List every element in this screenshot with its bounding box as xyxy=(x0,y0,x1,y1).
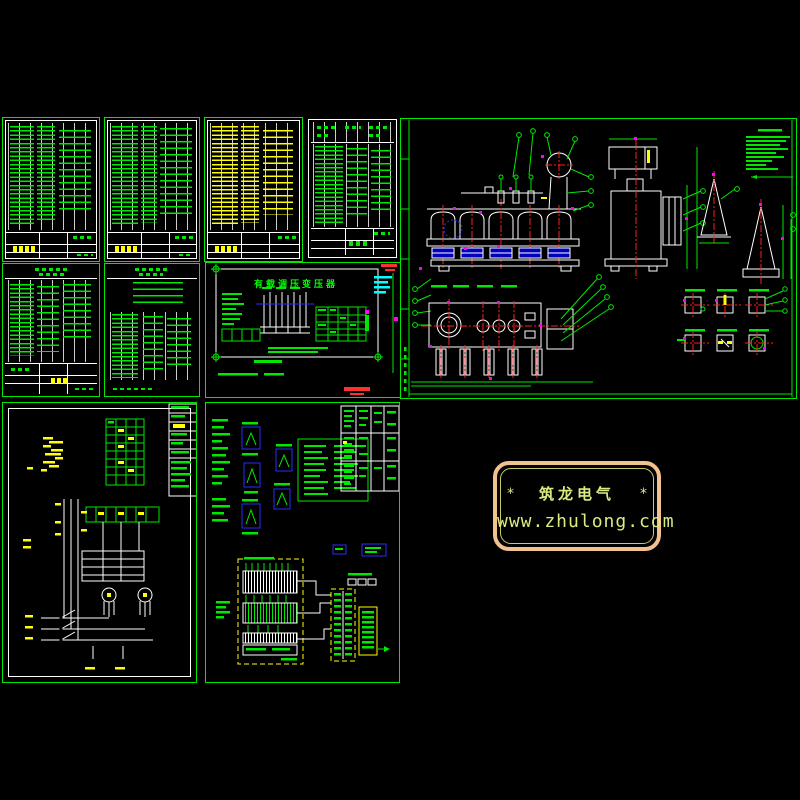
schedule-panel-4 xyxy=(308,119,397,258)
transformer-panel xyxy=(400,118,797,399)
table-rows xyxy=(112,126,138,227)
table-rows xyxy=(167,318,191,366)
drawing-name-label xyxy=(51,378,67,384)
left-legend-text xyxy=(212,419,230,522)
notes-box xyxy=(298,439,368,501)
table-header xyxy=(311,122,394,143)
schedule-panel-2 xyxy=(104,117,200,262)
table-rows xyxy=(59,130,91,213)
watermark-inner-line xyxy=(500,468,654,544)
drawing-name-label xyxy=(349,241,367,246)
title-block-text xyxy=(77,254,93,257)
watermark-brand-row: * 筑龙电气 * xyxy=(507,483,647,504)
switchgear-schematic-panel xyxy=(2,402,197,683)
switchgear-drawing xyxy=(3,403,196,682)
transformer-plan-view xyxy=(411,275,613,386)
footer-text xyxy=(113,388,153,391)
watermark-brand: 筑龙电气 xyxy=(539,483,615,504)
yellow-annotation-cluster xyxy=(27,437,63,472)
notes-text xyxy=(133,282,183,308)
table-rows xyxy=(141,126,157,223)
cad-drawing-sheet: 有载调压变压器 xyxy=(0,0,800,800)
cyan-revision-text xyxy=(374,276,392,294)
drawing-name-label xyxy=(13,246,35,252)
bushing-detail-2 xyxy=(743,199,795,285)
title-block xyxy=(107,232,197,259)
ratings-table xyxy=(316,307,366,341)
inner-frame xyxy=(9,409,191,677)
table-rows xyxy=(371,150,391,213)
title-block-text xyxy=(73,236,93,239)
table-rows xyxy=(112,314,138,378)
transformer-end-elevation xyxy=(605,137,705,279)
bushing-detail-1 xyxy=(697,171,739,245)
schedule-panel-6 xyxy=(104,263,200,397)
schedule-panel-1 xyxy=(2,117,100,262)
terminal-wiring-panel xyxy=(205,402,400,683)
tap-changer-panel: 有载调压变压器 xyxy=(205,262,405,398)
spec-text-lines xyxy=(218,347,328,376)
title-block xyxy=(5,363,97,394)
title-block-text xyxy=(175,236,193,239)
panel-title: 有载调压变压器 xyxy=(236,277,356,290)
watermark-url: www.zhulong.com xyxy=(497,511,657,532)
table-rows xyxy=(315,146,343,223)
title-block xyxy=(207,232,300,259)
schedule-panel-5 xyxy=(2,263,100,397)
table-rows xyxy=(10,284,34,356)
top-right-table xyxy=(341,406,399,491)
table-header xyxy=(5,266,97,279)
transformer-drawing xyxy=(401,119,796,398)
terminal-wiring-drawing xyxy=(206,403,399,682)
technical-notes-text xyxy=(746,129,793,179)
title-block-text xyxy=(11,368,31,371)
bay-label-strip xyxy=(86,507,159,522)
table-rows xyxy=(37,286,59,352)
title-block-text xyxy=(374,232,390,235)
tap-winding-diagram xyxy=(256,287,314,333)
right-title-strip xyxy=(169,404,196,496)
table-rows xyxy=(160,128,192,215)
star-right-icon: * xyxy=(640,486,647,502)
schedule-panel-3 xyxy=(204,117,303,262)
transformer-side-elevation xyxy=(427,151,581,271)
left-notes-text xyxy=(222,293,260,341)
table-rows xyxy=(263,130,293,215)
table-rows xyxy=(212,126,238,227)
aux-blue-boxes xyxy=(333,544,386,556)
table-rows xyxy=(347,148,367,217)
drawing-name-label xyxy=(115,246,137,252)
title-block-text xyxy=(179,254,193,257)
table-rows xyxy=(63,284,91,340)
title-block-text xyxy=(75,388,93,391)
table-rows xyxy=(10,126,34,227)
title-block xyxy=(311,228,394,255)
table-rows xyxy=(241,126,259,223)
single-line-schematic xyxy=(23,499,153,670)
relay-symbol-blocks xyxy=(242,422,292,535)
star-left-icon: * xyxy=(507,486,514,502)
title-block-text xyxy=(278,236,296,239)
table-header xyxy=(107,266,197,279)
equipment-table xyxy=(106,419,144,485)
watermark: * 筑龙电气 * www.zhulong.com xyxy=(493,461,661,551)
drawing-name-label xyxy=(215,246,237,252)
title-block xyxy=(5,232,97,259)
table-rows xyxy=(37,126,55,221)
terminal-strip-group xyxy=(238,557,303,664)
side-elevation-callouts xyxy=(413,129,594,328)
component-detail-views xyxy=(677,287,787,355)
table-rows xyxy=(143,316,163,374)
